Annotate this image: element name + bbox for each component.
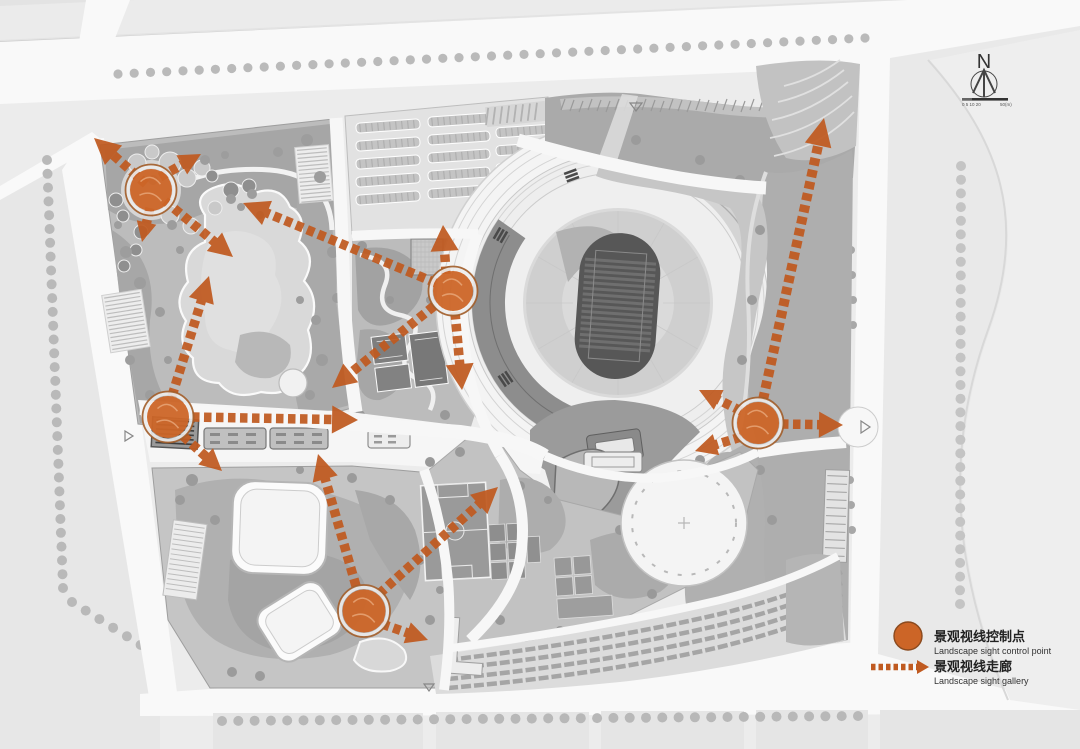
svg-text:Landscape sight gallery: Landscape sight gallery bbox=[934, 676, 1029, 686]
svg-text:0 5 10 20: 0 5 10 20 bbox=[962, 102, 981, 107]
svg-text:景观视线走廊: 景观视线走廊 bbox=[934, 659, 1012, 674]
svg-text:Landscape sight control point: Landscape sight control point bbox=[934, 646, 1052, 656]
svg-text:50(m): 50(m) bbox=[1000, 102, 1012, 107]
svg-text:景观视线控制点: 景观视线控制点 bbox=[934, 629, 1025, 644]
